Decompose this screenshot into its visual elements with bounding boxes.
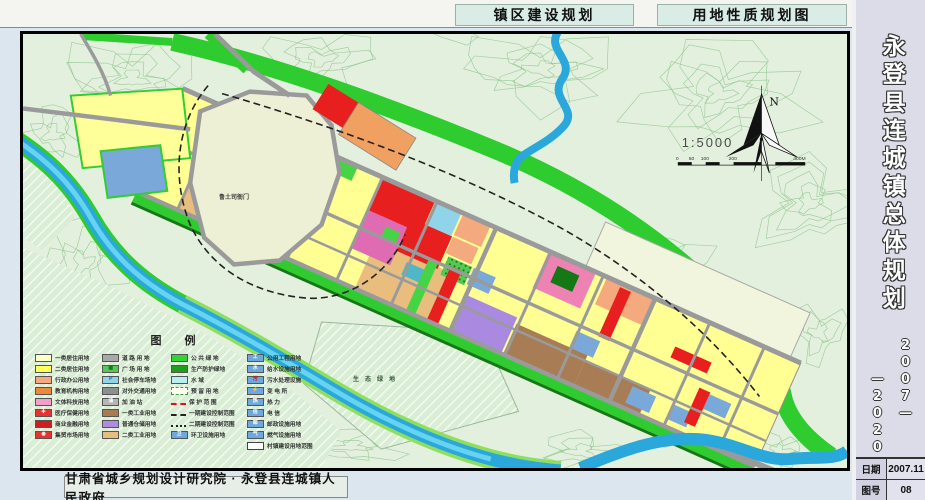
legend-swatch — [171, 376, 188, 384]
legend-item: 保 护 范 围 — [171, 396, 244, 407]
legend-swatch: ◉ — [35, 431, 52, 439]
eco-green-label: 生态绿地 — [353, 374, 401, 383]
legend-swatch: 污 — [247, 376, 264, 384]
legend-label: 医疗保健用地 — [55, 408, 89, 417]
legend-label: 社会停车场地 — [122, 375, 156, 384]
legend-swatch: 邮 — [247, 420, 264, 428]
legend-item: 教育机构用地 — [35, 385, 99, 396]
legend-label: 二类居住用地 — [55, 364, 89, 373]
legend-item: 信电 信 — [247, 407, 321, 418]
legend-item: 污污水处理设施 — [247, 374, 321, 385]
legend-label: 二类工业用地 — [122, 430, 156, 439]
legend-swatch: 卫 — [171, 431, 188, 439]
legend-label: 对外交通用地 — [122, 386, 156, 395]
legend-column: 工公用工程用地水给水设施用地污污水处理设施⚡变 电 所热热 力信电 信邮邮政设施… — [247, 352, 321, 451]
date-row: 日期 2007.11 — [856, 459, 925, 480]
legend-item: 道 路 用 地 — [102, 352, 167, 363]
legend-symbol: 卫 — [177, 432, 182, 437]
legend-column: 一类居住用地二类居住用地行政办公用地教育机构用地文体科技用地✚医疗保健用地商业金… — [35, 352, 99, 451]
legend-swatch — [171, 425, 186, 427]
sheet-number-row: 图号 08 — [856, 480, 925, 500]
sheet-number-label: 图号 — [856, 480, 887, 500]
legend-label: 水 域 — [191, 375, 204, 384]
legend-item: 卫环卫设施用地 — [171, 429, 244, 440]
legend-symbol: 污 — [253, 377, 258, 382]
legend-item: 村镇建设用地范围 — [247, 440, 321, 451]
legend-symbol: 邮 — [253, 421, 258, 426]
legend-item: P社会停车场地 — [102, 374, 167, 385]
legend-item: 文体科技用地 — [35, 396, 99, 407]
legend-swatch: ⚡ — [247, 387, 264, 395]
legend-label: 邮政设施用地 — [267, 419, 301, 428]
legend-item: 二期建设控制范围 — [171, 418, 244, 429]
legend-item: 一期建设控制范围 — [171, 407, 244, 418]
north-n-label: N — [769, 96, 779, 109]
legend-item: 水给水设施用地 — [247, 363, 321, 374]
legend-symbol: ⚡ — [252, 388, 258, 393]
legend-swatch — [171, 365, 188, 373]
legend-label: 生产防护绿地 — [191, 364, 225, 373]
legend-swatch — [171, 354, 188, 362]
legend-label: 变 电 所 — [267, 386, 287, 395]
legend-item: 普通仓储用地 — [102, 418, 167, 429]
legend-swatch: 热 — [247, 398, 264, 406]
legend-symbol: 工 — [253, 355, 258, 360]
legend-item: ▦广 场 用 地 — [102, 363, 167, 374]
legend-label: 一类居住用地 — [55, 353, 89, 362]
legend-item: 水 域 — [171, 374, 244, 385]
legend-label: 村镇建设用地范围 — [267, 441, 313, 450]
legend-swatch — [35, 420, 52, 428]
legend-item: 商业金融用地 — [35, 418, 99, 429]
header-title-left: 镇区建设规划 — [455, 4, 634, 26]
legend-column: 公 共 绿 地生产防护绿地水 域预 留 用 地保 护 范 围一期建设控制范围二期… — [171, 352, 244, 451]
legend-swatch — [35, 376, 52, 384]
legend-label: 公用工程用地 — [267, 353, 301, 362]
legend-columns: 一类居住用地二类居住用地行政办公用地教育机构用地文体科技用地✚医疗保健用地商业金… — [35, 352, 321, 451]
legend-symbol: ◉ — [41, 432, 45, 437]
legend-label: 商业金融用地 — [55, 419, 89, 428]
legend-label: 文体科技用地 — [55, 397, 89, 406]
legend-label: 普通仓储用地 — [122, 419, 156, 428]
legend-item: 对外交通用地 — [102, 385, 167, 396]
legend-swatch — [102, 431, 119, 439]
legend-column: 道 路 用 地▦广 场 用 地P社会停车场地对外交通用地油加 油 站一类工业用地… — [102, 352, 167, 451]
legend-swatch: 气 — [247, 431, 264, 439]
legend-label: 加 油 站 — [122, 397, 142, 406]
legend-swatch — [171, 414, 186, 416]
plan-title-vertical: 永登县连城镇总体规划 — [876, 34, 905, 314]
legend-label: 集贸市场用地 — [55, 430, 89, 439]
legend-item: 公 共 绿 地 — [171, 352, 244, 363]
legend-swatch: ▦ — [102, 365, 119, 373]
legend-symbol: 水 — [253, 366, 258, 371]
legend-label: 一期建设控制范围 — [189, 408, 235, 417]
svg-text:200: 200 — [729, 156, 738, 162]
svg-text:0: 0 — [676, 156, 679, 162]
legend-swatch — [102, 387, 119, 395]
map-legend: 图 例 一类居住用地二类居住用地行政办公用地教育机构用地文体科技用地✚医疗保健用… — [35, 332, 321, 451]
legend-label: 燃气设施用地 — [267, 430, 301, 439]
legend-symbol: 信 — [253, 410, 258, 415]
scale-ratio-text: 1:5000 — [682, 135, 733, 150]
legend-symbol: P — [109, 377, 112, 382]
svg-text:50: 50 — [689, 156, 695, 162]
legend-label: 预 留 用 地 — [191, 386, 219, 395]
legend-symbol: ▦ — [108, 366, 113, 371]
legend-label: 污水处理设施 — [267, 375, 301, 384]
legend-symbol: 热 — [253, 399, 258, 404]
legend-swatch — [35, 354, 52, 362]
legend-item: 二类居住用地 — [35, 363, 99, 374]
legend-swatch — [171, 403, 186, 405]
legend-label: 道 路 用 地 — [122, 353, 150, 362]
planning-sheet: 镇区建设规划 用地性质规划图 — [0, 0, 925, 500]
map-canvas: N 1:5000 0 50 100 200 400M 鲁土司衙门 — [20, 31, 850, 471]
historic-site-label: 鲁土司衙门 — [219, 192, 249, 201]
legend-item: ⚡变 电 所 — [247, 385, 321, 396]
legend-swatch — [102, 409, 119, 417]
legend-label: 一类工业用地 — [122, 408, 156, 417]
legend-swatch — [171, 387, 188, 395]
legend-swatch: 油 — [102, 398, 119, 406]
sheet-number-value: 08 — [887, 480, 925, 500]
legend-swatch: P — [102, 376, 119, 384]
legend-label: 教育机构用地 — [55, 386, 89, 395]
legend-label: 保 护 范 围 — [189, 397, 217, 406]
legend-swatch — [35, 387, 52, 395]
legend-item: ◉集贸市场用地 — [35, 429, 99, 440]
legend-swatch: ✚ — [35, 409, 52, 417]
legend-swatch: 工 — [247, 354, 264, 362]
legend-label: 行政办公用地 — [55, 375, 89, 384]
plan-year-start: 2007— — [897, 338, 912, 423]
svg-text:400M: 400M — [793, 156, 805, 162]
plan-year-end: —2020 — [869, 372, 884, 457]
legend-label: 广 场 用 地 — [122, 364, 150, 373]
legend-item: 行政办公用地 — [35, 374, 99, 385]
sheet-info-table: 日期 2007.11 图号 08 — [856, 457, 925, 500]
legend-item: 生产防护绿地 — [171, 363, 244, 374]
date-label: 日期 — [856, 459, 887, 479]
svg-text:100: 100 — [701, 156, 710, 162]
legend-label: 二期建设控制范围 — [189, 419, 235, 428]
legend-label: 环卫设施用地 — [191, 430, 225, 439]
agency-title-box: 甘肃省城乡规划设计研究院 · 永登县连城镇人民政府 — [64, 476, 348, 498]
legend-label: 给水设施用地 — [267, 364, 301, 373]
header-strip: 镇区建设规划 用地性质规划图 — [0, 0, 852, 28]
legend-item: ✚医疗保健用地 — [35, 407, 99, 418]
legend-label: 电 信 — [267, 408, 280, 417]
legend-symbol: 气 — [253, 432, 258, 437]
legend-item: 工公用工程用地 — [247, 352, 321, 363]
legend-swatch — [102, 420, 119, 428]
legend-label: 热 力 — [267, 397, 280, 406]
sheet-main-area: 镇区建设规划 用地性质规划图 — [0, 0, 852, 500]
legend-symbol: 油 — [108, 399, 113, 404]
legend-item: 气燃气设施用地 — [247, 429, 321, 440]
legend-item: 一类居住用地 — [35, 352, 99, 363]
legend-label: 公 共 绿 地 — [191, 353, 219, 362]
legend-swatch — [247, 442, 264, 450]
legend-swatch — [35, 398, 52, 406]
date-value: 2007.11 — [887, 459, 925, 479]
header-title-right: 用地性质规划图 — [657, 4, 847, 26]
legend-swatch — [35, 365, 52, 373]
legend-swatch — [102, 354, 119, 362]
legend-swatch: 水 — [247, 365, 264, 373]
title-sidebar: 永登县连城镇总体规划 2007— —2020 日期 2007.11 图号 08 — [852, 0, 925, 500]
legend-item: 一类工业用地 — [102, 407, 167, 418]
legend-item: 二类工业用地 — [102, 429, 167, 440]
legend-title: 图 例 — [35, 332, 321, 348]
legend-item: 预 留 用 地 — [171, 385, 244, 396]
legend-item: 邮邮政设施用地 — [247, 418, 321, 429]
legend-item: 油加 油 站 — [102, 396, 167, 407]
legend-item: 热热 力 — [247, 396, 321, 407]
legend-symbol: ✚ — [41, 410, 45, 415]
legend-swatch: 信 — [247, 409, 264, 417]
